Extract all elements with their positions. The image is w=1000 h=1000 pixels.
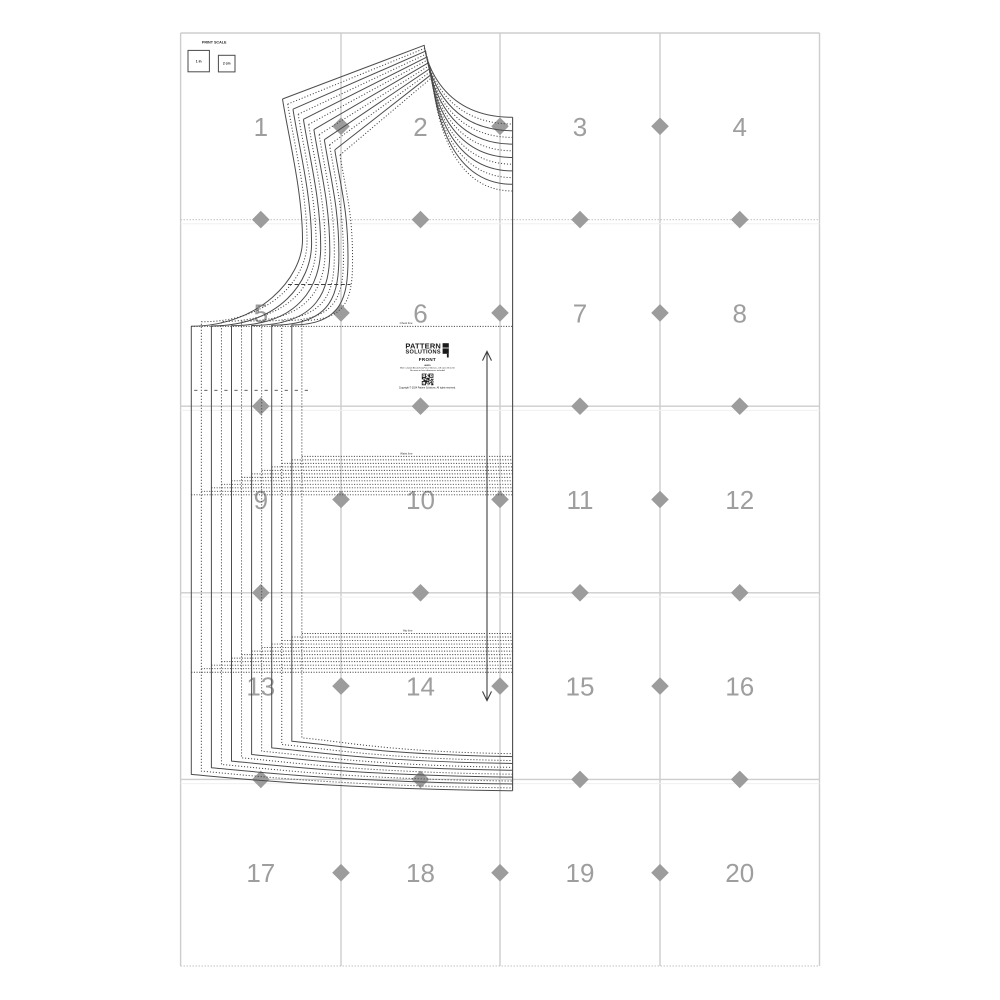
svg-text:FRONT: FRONT — [419, 357, 436, 362]
svg-text:#0019: #0019 — [424, 365, 431, 367]
svg-text:12: 12 — [725, 485, 754, 515]
svg-text:2: 2 — [413, 112, 427, 142]
svg-text:3: 3 — [573, 112, 587, 142]
svg-text:7: 7 — [573, 298, 587, 328]
svg-text:4: 4 — [733, 112, 747, 142]
svg-text:Waist line: Waist line — [400, 452, 413, 456]
svg-text:2 cm: 2 cm — [223, 62, 231, 66]
svg-text:10: 10 — [406, 485, 435, 515]
svg-text:11: 11 — [567, 485, 594, 515]
svg-text:17: 17 — [246, 858, 275, 888]
svg-text:Chest line: Chest line — [400, 321, 413, 325]
svg-text:Copyright © 2024 Pattern Solut: Copyright © 2024 Pattern Solutions. All … — [399, 387, 456, 390]
svg-text:1: 1 — [254, 112, 268, 142]
svg-text:19: 19 — [566, 858, 595, 888]
svg-text:9: 9 — [254, 485, 268, 515]
svg-text:15: 15 — [566, 672, 595, 702]
svg-text:13: 13 — [246, 672, 275, 702]
svg-text:1 in: 1 in — [196, 59, 202, 63]
svg-text:Hip line: Hip line — [403, 629, 413, 633]
svg-text:Men's Jacket Block (Two-Piece: Men's Jacket Block (Two-Piece Sleeve) - … — [400, 367, 455, 370]
svg-text:8: 8 — [733, 298, 747, 328]
svg-text:16: 16 — [725, 672, 754, 702]
svg-text:14: 14 — [406, 672, 435, 702]
svg-text:SOLUTIONS: SOLUTIONS — [406, 350, 441, 356]
svg-text:PRINT SCALE: PRINT SCALE — [202, 40, 227, 44]
svg-text:18: 18 — [406, 858, 435, 888]
svg-text:No seam or hem allowances incl: No seam or hem allowances included — [410, 369, 445, 372]
svg-text:20: 20 — [725, 858, 754, 888]
svg-text:6: 6 — [413, 298, 427, 328]
